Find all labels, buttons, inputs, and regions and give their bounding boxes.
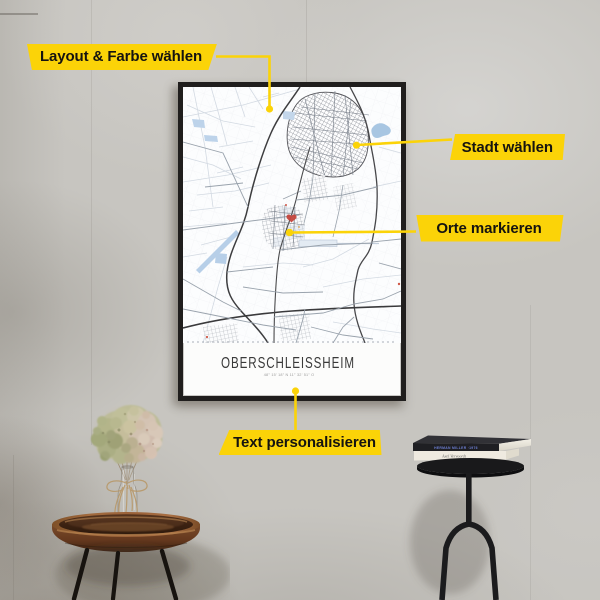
svg-text:Axel Vervoordt: Axel Vervoordt [441,453,467,458]
svg-text:HERMAN MILLER ·1976: HERMAN MILLER ·1976 [434,446,478,450]
